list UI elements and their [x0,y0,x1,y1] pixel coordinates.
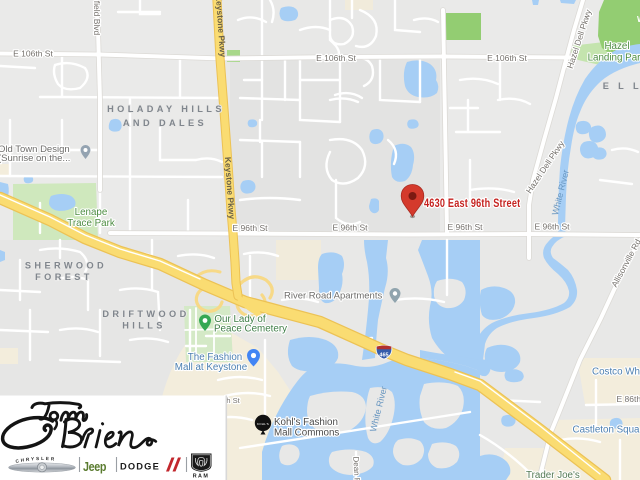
svg-text:E 96th St: E 96th St [535,222,571,232]
svg-text:Kohl's Fashion: Kohl's Fashion [274,417,338,428]
svg-text:E 96th St: E 96th St [233,223,269,233]
svg-text:Mall at Keystone: Mall at Keystone [175,362,248,373]
svg-text:KOHL'S: KOHL'S [257,422,269,426]
svg-text:DRIFTWOOD: DRIFTWOOD [102,309,189,319]
svg-text:Castleton Squa: Castleton Squa [573,425,640,436]
svg-text:E 106th St: E 106th St [487,53,527,63]
svg-text:Mall Commons: Mall Commons [274,428,339,439]
svg-text:Costco Wh: Costco Wh [592,367,640,378]
svg-text:SHERWOOD: SHERWOOD [25,261,107,271]
svg-text:Hazel: Hazel [604,41,629,52]
svg-text:4630 East 96th Street: 4630 East 96th Street [424,197,521,211]
svg-text:E 96th St: E 96th St [448,222,484,232]
svg-text:HOLADAY HILLS: HOLADAY HILLS [107,104,225,114]
svg-text:Peace Cemetery: Peace Cemetery [214,324,287,335]
svg-text:Landing Par: Landing Par [588,53,640,64]
svg-text:HILLS: HILLS [122,321,166,331]
svg-text:(Sunrise on the...: (Sunrise on the... [0,153,70,164]
svg-text:Trace Park: Trace Park [67,218,115,229]
svg-text:Jeep: Jeep [83,460,106,474]
svg-text:E 106th St: E 106th St [316,53,356,63]
svg-text:RAM: RAM [193,474,209,480]
svg-text:FOREST: FOREST [35,272,93,282]
svg-text:AND DALES: AND DALES [123,118,207,128]
svg-text:E 86th St: E 86th St [617,394,640,404]
svg-text:Trader Joe's: Trader Joe's [526,470,580,480]
svg-text:h St: h St [226,396,240,405]
svg-text:E 96th St: E 96th St [333,223,369,233]
svg-text:River Road Apartments: River Road Apartments [284,291,382,302]
svg-text:Dean R: Dean R [351,456,361,480]
svg-text:Lenape: Lenape [75,207,108,218]
svg-text:field Blvd: field Blvd [92,1,102,36]
svg-text:DODGE: DODGE [120,460,160,471]
svg-text:465: 465 [379,353,388,359]
svg-text:E L L E R: E L L E R [603,81,640,91]
svg-text:E 106th St: E 106th St [13,49,53,59]
